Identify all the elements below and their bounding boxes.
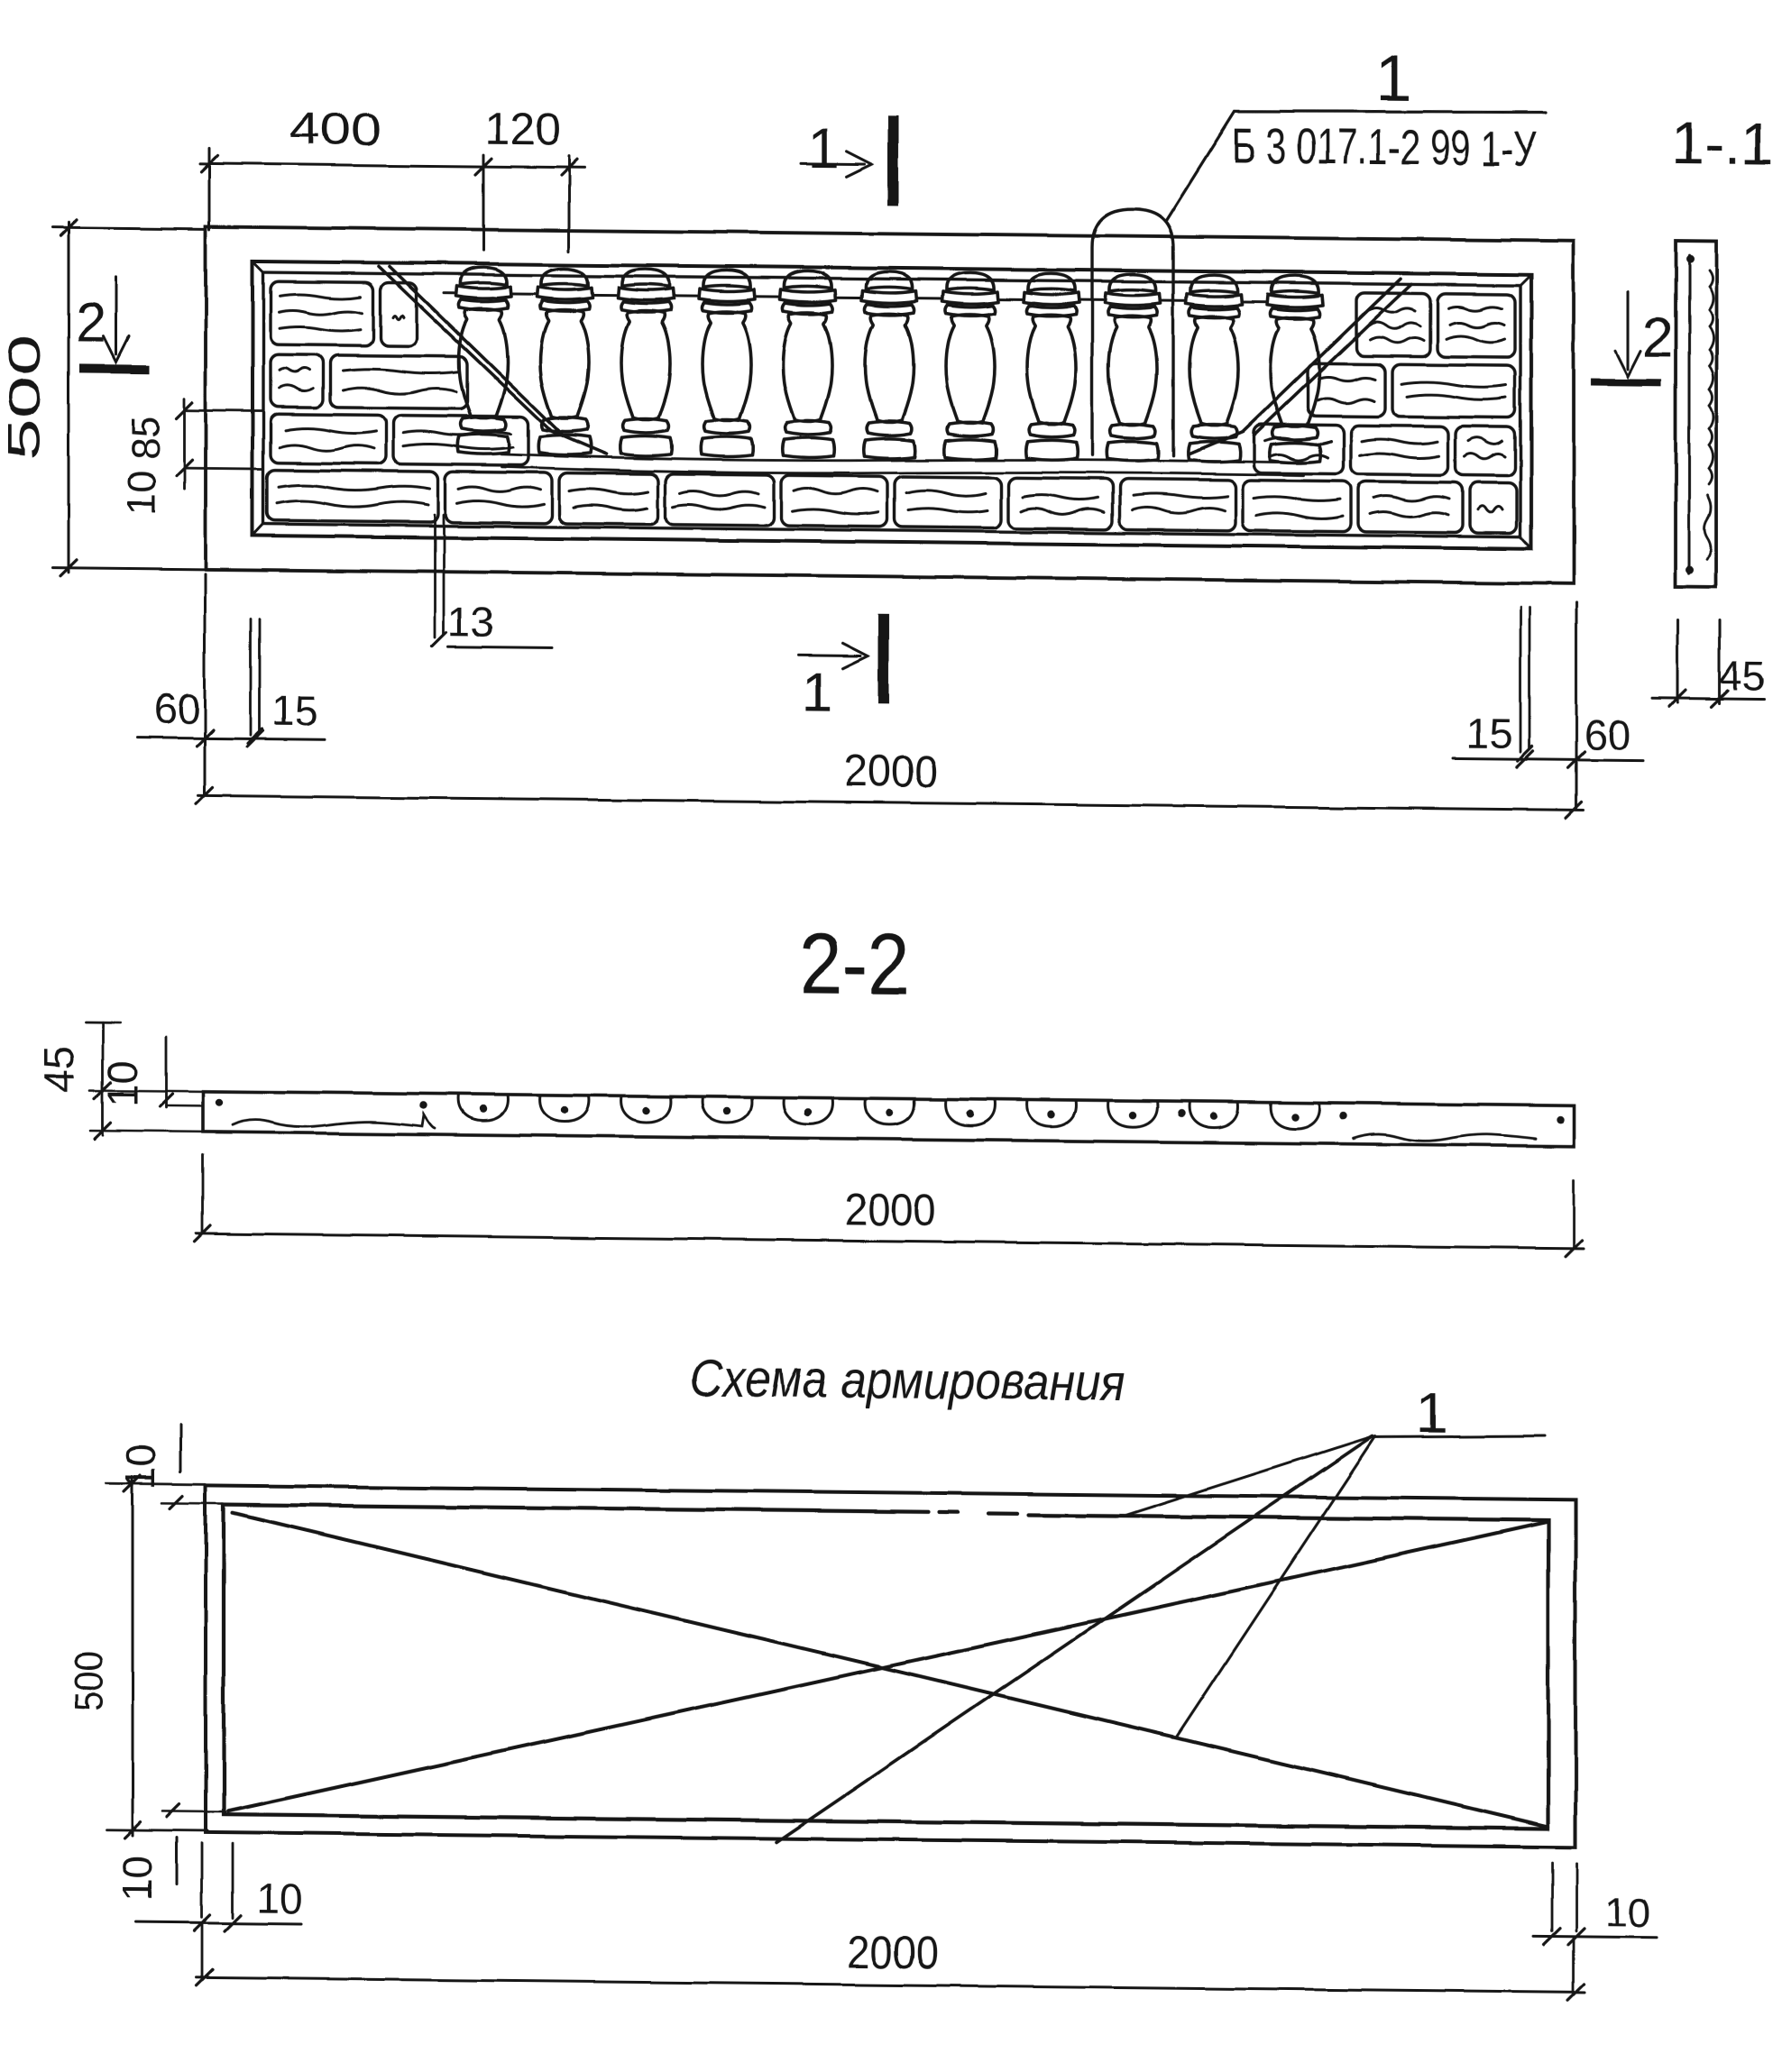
svg-text:13: 13 <box>447 598 493 646</box>
svg-text:10: 10 <box>114 1856 161 1902</box>
svg-text:2000: 2000 <box>847 1927 939 1978</box>
svg-text:10: 10 <box>256 1875 302 1922</box>
svg-text:60: 60 <box>153 685 199 733</box>
svg-text:1-.1: 1-.1 <box>1671 109 1773 177</box>
svg-text:2000: 2000 <box>844 1184 936 1235</box>
svg-text:2-2: 2-2 <box>800 915 910 1013</box>
svg-text:120: 120 <box>485 104 562 155</box>
svg-text:500: 500 <box>0 334 50 461</box>
svg-text:1: 1 <box>808 117 839 179</box>
svg-text:10: 10 <box>1604 1889 1650 1937</box>
svg-text:1: 1 <box>1375 42 1411 115</box>
svg-text:45: 45 <box>1719 652 1765 700</box>
svg-text:10: 10 <box>120 471 164 515</box>
svg-text:Схема армирования: Схема армирования <box>689 1349 1125 1412</box>
svg-text:2000: 2000 <box>844 746 938 797</box>
svg-text:500: 500 <box>67 1652 111 1712</box>
svg-text:60: 60 <box>1584 711 1630 758</box>
svg-text:Б 3 017.1-2 99 1-У: Б 3 017.1-2 99 1-У <box>1232 116 1537 177</box>
svg-text:2: 2 <box>76 292 106 354</box>
svg-text:1: 1 <box>802 661 832 723</box>
svg-text:400: 400 <box>289 103 381 154</box>
svg-text:1: 1 <box>1416 1380 1448 1444</box>
svg-text:15: 15 <box>271 686 317 734</box>
svg-text:45: 45 <box>36 1046 83 1093</box>
svg-text:10: 10 <box>99 1060 146 1107</box>
svg-text:85: 85 <box>124 416 168 460</box>
svg-text:15: 15 <box>1466 710 1512 757</box>
svg-text:2: 2 <box>1642 307 1673 369</box>
